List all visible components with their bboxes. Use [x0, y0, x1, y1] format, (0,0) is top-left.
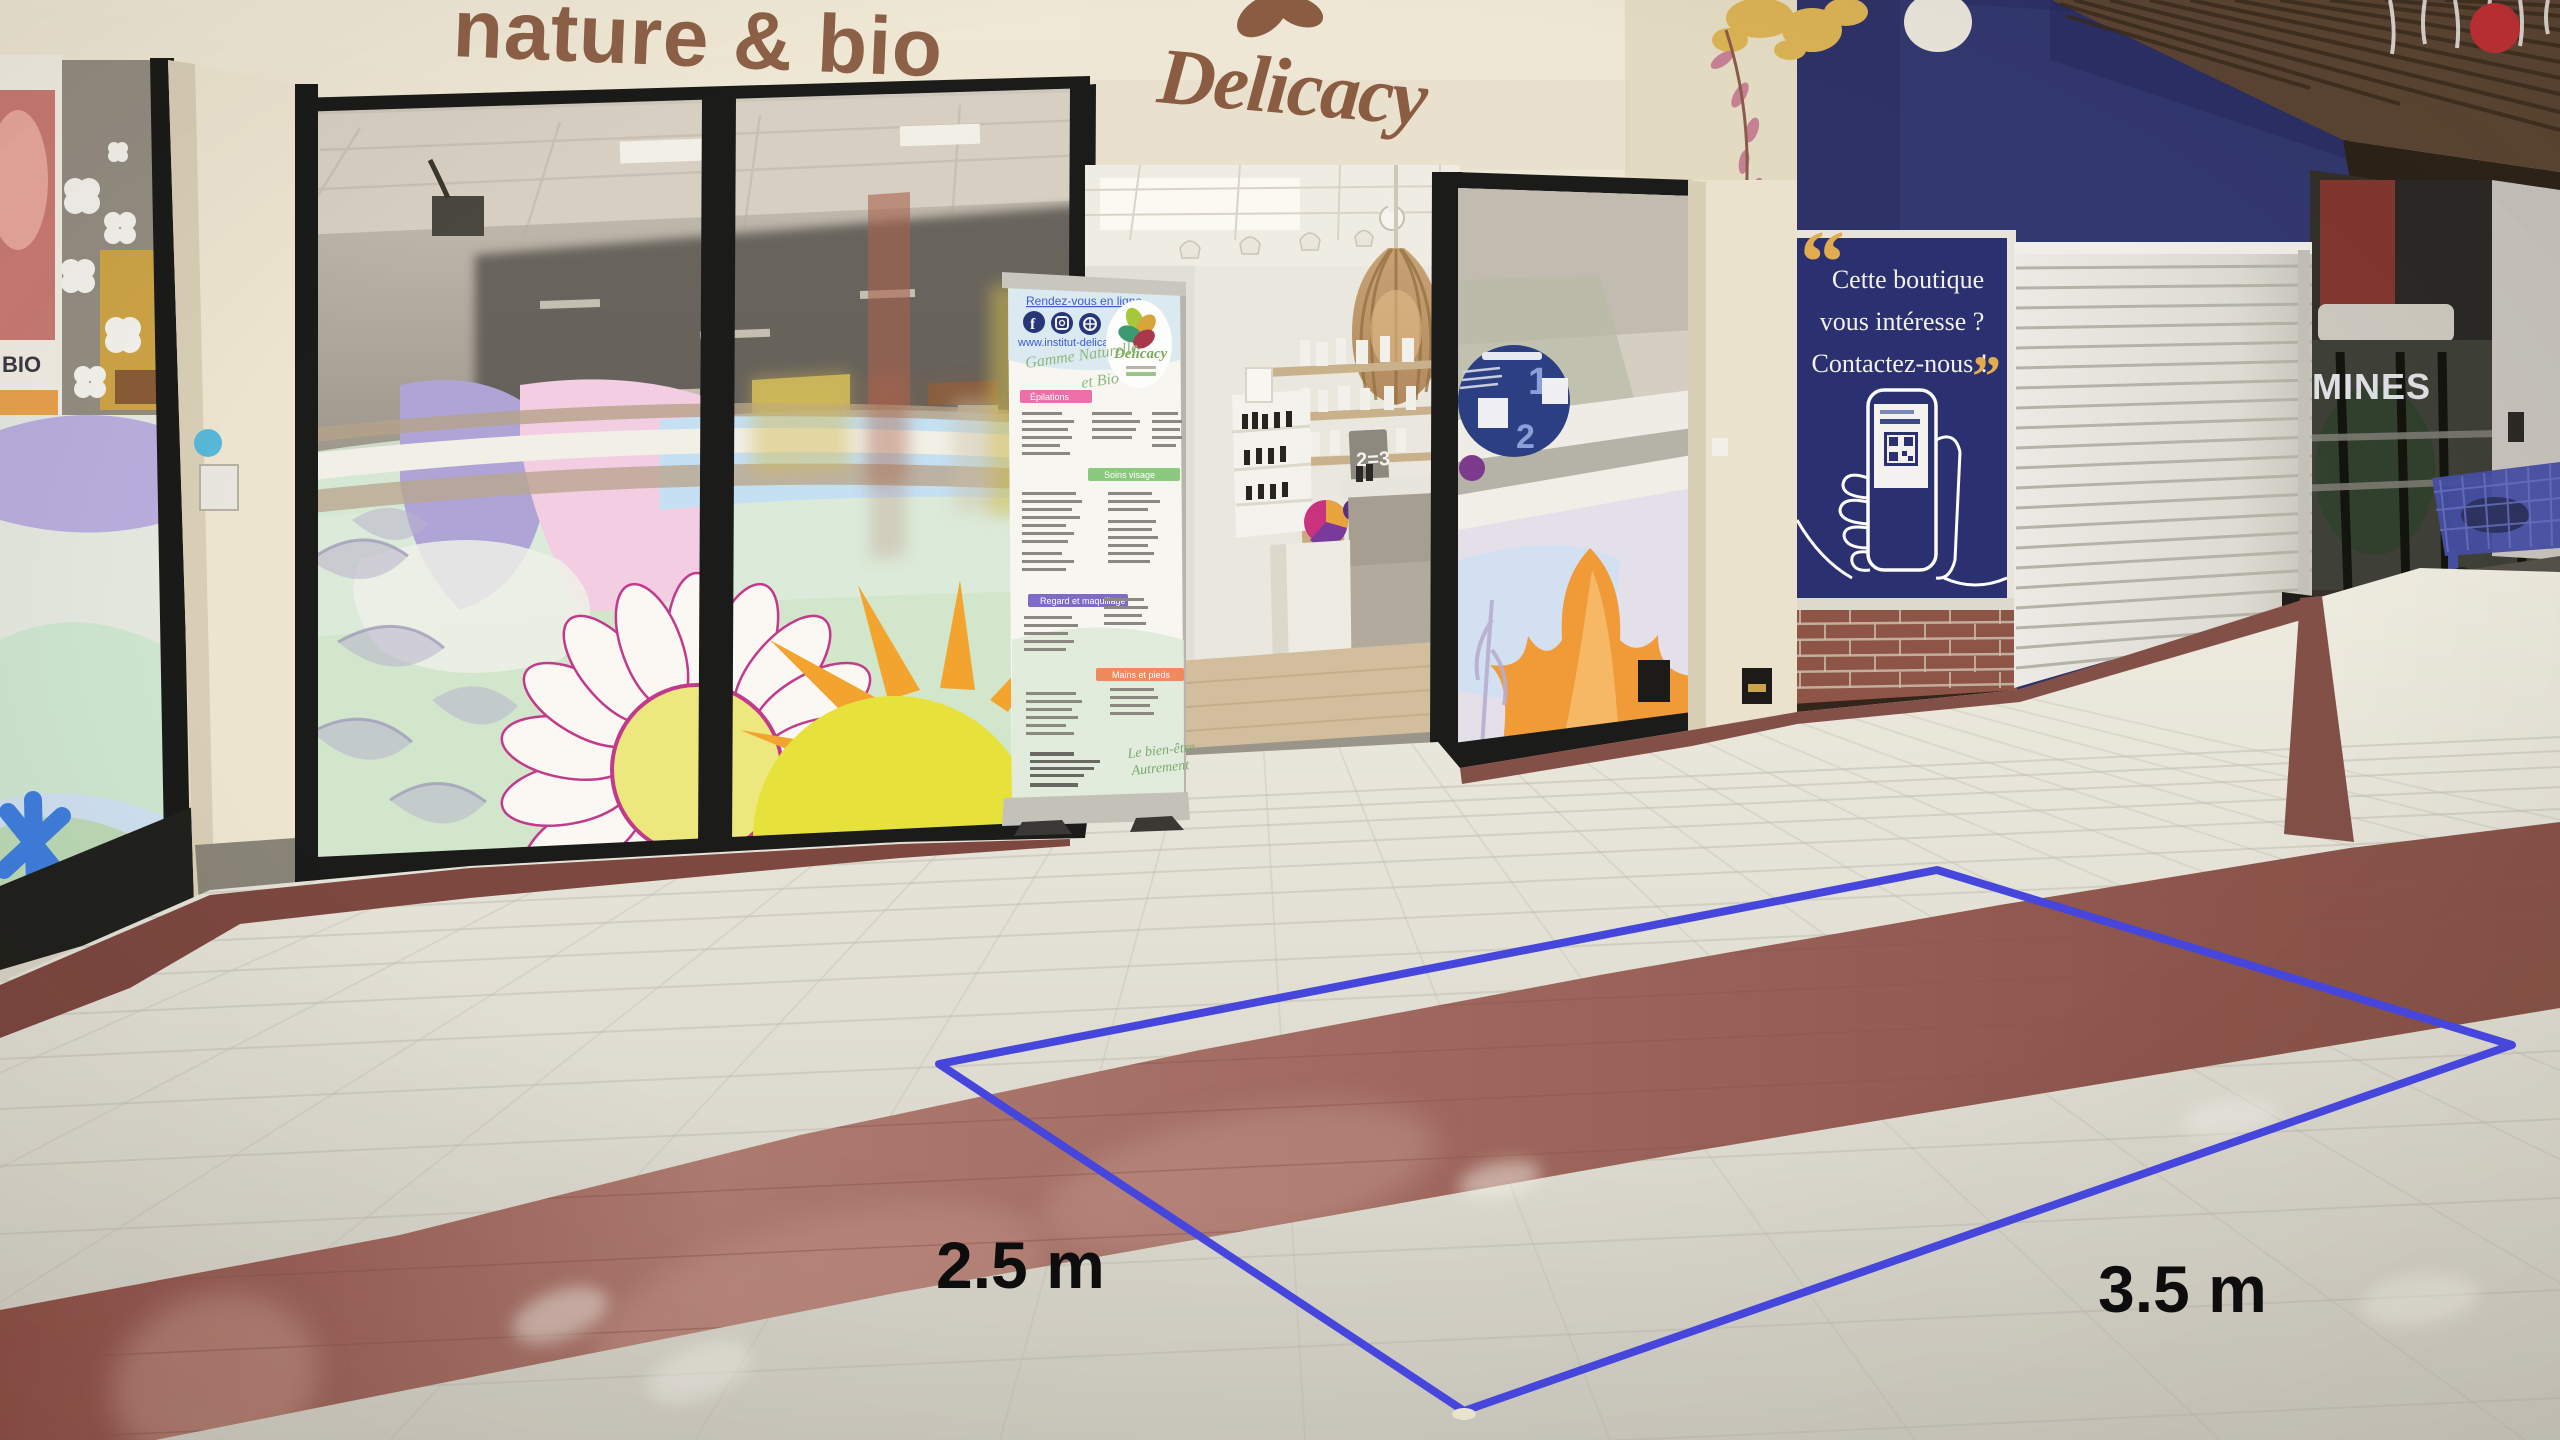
svg-text:3.5 m: 3.5 m: [2098, 1252, 2267, 1326]
svg-text:2.5 m: 2.5 m: [936, 1228, 1105, 1302]
